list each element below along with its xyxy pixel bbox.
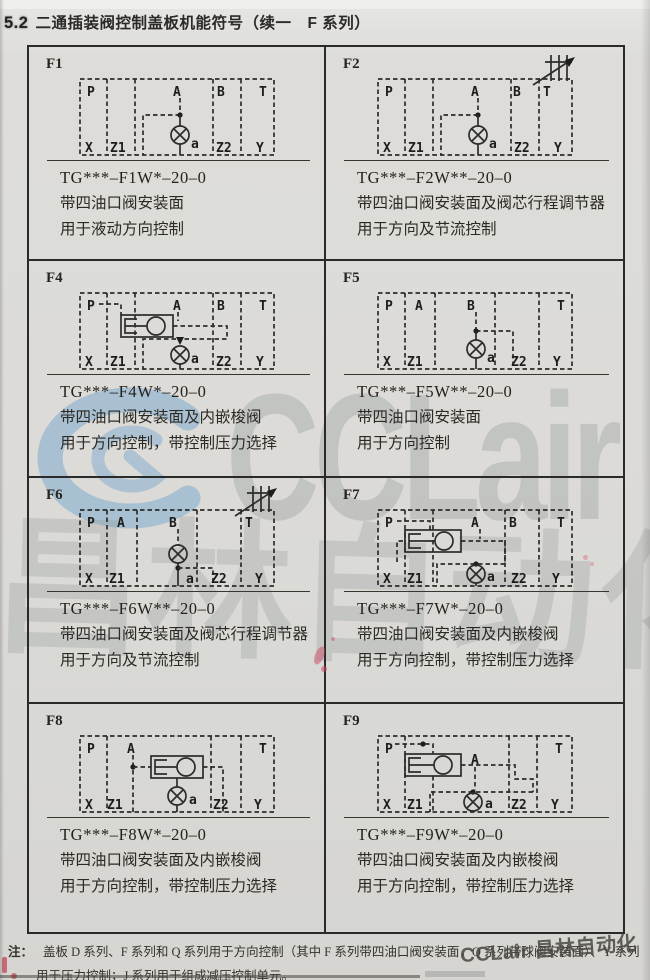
description-line: 带四油口阀安装面及内嵌梭阀 [357, 848, 623, 874]
port-label: B [509, 516, 517, 531]
port-label: Y [552, 572, 560, 587]
shuttle-valve-icon [405, 754, 461, 776]
scan-edge-left [0, 0, 4, 980]
port-label: Z1 [407, 355, 423, 370]
port-label: X [383, 355, 391, 370]
port-label: X [85, 141, 93, 156]
cell-label: F5 [343, 270, 360, 287]
cell-label: F6 [46, 487, 63, 504]
divider-rule [47, 160, 310, 161]
divider-rule [344, 374, 609, 375]
port-label: Z1 [407, 572, 423, 587]
valve-label: a [487, 570, 495, 585]
footnote-label: 注： [8, 945, 33, 959]
port-label: T [557, 516, 565, 531]
port-label: X [383, 572, 391, 587]
description-line: 带四油口阀安装面及内嵌梭阀 [60, 848, 324, 874]
f2-symbol-diagram: P A B T X Z1 Z2 Y a [375, 51, 575, 159]
port-label: Z1 [109, 572, 125, 587]
cell-f1: F1 P A B T X Z1 Z2 Y a [29, 47, 326, 261]
description-line: 用于方向控制，带控制压力选择 [357, 648, 623, 674]
pilot-valve-icon [171, 126, 189, 144]
port-label: T [557, 299, 565, 314]
port-label: Z1 [110, 141, 126, 156]
description-line: 用于方向及节流控制 [60, 648, 324, 674]
divider-rule [47, 591, 310, 592]
port-label: Z2 [211, 572, 227, 587]
cell-f5: F5 P A B T X Z1 Z2 Y a [326, 261, 623, 478]
valve-label: a [485, 797, 493, 812]
description-line: 带四油口阀安装面及阀芯行程调节器 [60, 622, 324, 648]
port-label: T [543, 85, 551, 100]
port-label: Y [554, 141, 562, 156]
port-label: X [85, 355, 93, 370]
description-line: 带四油口阀安装面及内嵌梭阀 [60, 405, 324, 431]
model-code: TG***–F6W**–20–0 [60, 599, 324, 619]
port-label: T [259, 742, 267, 757]
valve-label: a [489, 137, 497, 152]
port-label: Z1 [408, 141, 424, 156]
pilot-valve-icon [464, 793, 482, 811]
cell-f2: F2 P A B T [326, 47, 623, 261]
port-label: P [385, 85, 393, 100]
port-label: Z2 [511, 798, 527, 813]
port-label: T [555, 742, 563, 757]
port-label: A [471, 85, 479, 100]
cell-label: F2 [343, 56, 360, 73]
description-line: 用于方向控制，带控制压力选择 [60, 431, 324, 457]
cell-f4: F4 P A B [29, 261, 326, 478]
port-label: X [383, 141, 391, 156]
port-label: Z2 [514, 141, 530, 156]
scan-edge-top [0, 0, 650, 9]
divider-rule [47, 374, 310, 375]
f7-symbol-diagram: P A B T X Z1 Z2 Y a [375, 482, 575, 590]
port-label: Z1 [407, 798, 423, 813]
f1-symbol-diagram: P A B T X Z1 Z2 Y a [77, 51, 277, 159]
valve-label: a [191, 137, 199, 152]
pilot-valve-icon [168, 787, 186, 805]
port-label: Y [551, 798, 559, 813]
port-label: Z1 [107, 798, 123, 813]
port-label: A [117, 516, 125, 531]
port-label: B [169, 516, 177, 531]
description-line: 用于方向控制 [357, 431, 623, 457]
cell-label: F9 [343, 713, 360, 730]
port-label: P [385, 516, 393, 531]
port-label: Z1 [110, 355, 126, 370]
description-line: 用于方向控制，带控制压力选择 [357, 874, 623, 900]
f5-symbol-diagram: P A B T X Z1 Z2 Y a [375, 265, 575, 373]
scan-edge-right [641, 0, 650, 980]
port-label: B [217, 299, 225, 314]
pilot-valve-icon [169, 545, 187, 563]
cell-f7: F7 P A B [326, 478, 623, 704]
model-code: TG***–F4W*–20–0 [60, 382, 324, 402]
port-label: P [87, 516, 95, 531]
cell-label: F4 [46, 270, 63, 287]
port-label: T [259, 85, 267, 100]
description-line: 用于液动方向控制 [60, 217, 324, 243]
f6-symbol-diagram: P A B T X Z1 Z2 Y a [77, 482, 277, 590]
stroke-adjuster-icon [533, 55, 575, 85]
description-line: 带四油口阀安装面 [357, 405, 623, 431]
model-code: TG***–F1W*–20–0 [60, 168, 324, 188]
port-label: A [415, 299, 423, 314]
section-number: 5.2 [4, 14, 28, 32]
cell-f9: F9 P A T [326, 704, 623, 932]
shuttle-valve-icon [151, 756, 203, 778]
port-label: T [259, 299, 267, 314]
footnote-line2: 用于压力控制；J 系列用于组成减压控制单元。 [36, 965, 639, 980]
model-code: TG***–F8W*–20–0 [60, 825, 324, 845]
model-code: TG***–F7W*–20–0 [357, 599, 623, 619]
port-label: A [471, 516, 479, 531]
cell-label: F1 [46, 56, 63, 73]
port-label: Y [553, 355, 561, 370]
port-label: B [217, 85, 225, 100]
model-code: TG***–F5W**–20–0 [357, 382, 623, 402]
model-code: TG***–F9W*–20–0 [357, 825, 623, 845]
pilot-valve-icon [467, 340, 485, 358]
scanned-catalog-page: 5.2二通插装阀控制盖板机能符号（续一 F 系列） CCLair 昌林自动化 F… [0, 0, 650, 980]
port-label: A [173, 85, 181, 100]
port-label: B [467, 299, 475, 314]
f9-symbol-diagram: P A T X Z1 Z2 Y a [375, 708, 575, 816]
cell-f8: F8 P A T [29, 704, 326, 932]
cell-label: F7 [343, 487, 360, 504]
shuttle-valve-icon [121, 315, 173, 337]
divider-rule [344, 591, 609, 592]
valve-label: a [186, 572, 194, 587]
pilot-valve-icon [469, 126, 487, 144]
port-label: Y [256, 141, 264, 156]
pilot-valve-icon [171, 346, 189, 364]
port-label: X [85, 798, 93, 813]
port-label: Z2 [511, 572, 527, 587]
port-label: A [471, 753, 479, 768]
model-code: TG***–F2W**–20–0 [357, 168, 623, 188]
port-label: T [245, 516, 253, 531]
description-line: 用于方向控制，带控制压力选择 [60, 874, 324, 900]
port-label: P [87, 299, 95, 314]
divider-rule [344, 817, 609, 818]
port-label: Z2 [213, 798, 229, 813]
description-line: 用于方向及节流控制 [357, 217, 623, 243]
port-label: Y [254, 798, 262, 813]
f8-symbol-diagram: P A T X Z1 Z2 Y a [77, 708, 277, 816]
f4-symbol-diagram: P A B T X Z1 Z2 Y a [77, 265, 277, 373]
section-title: 二通插装阀控制盖板机能符号（续一 F 系列） [35, 15, 370, 32]
port-label: X [85, 572, 93, 587]
valve-label: a [487, 351, 495, 366]
symbol-table: F1 P A B T X Z1 Z2 Y a [27, 45, 625, 934]
description-line: 带四油口阀安装面 [60, 191, 324, 217]
port-label: Z2 [216, 355, 232, 370]
port-label: P [87, 742, 95, 757]
port-label: P [385, 742, 393, 757]
stroke-adjuster-icon [235, 486, 277, 516]
divider-rule [47, 817, 310, 818]
pen-mark [2, 957, 7, 973]
valve-label: a [191, 352, 199, 367]
port-label: X [383, 798, 391, 813]
page-title: 5.2二通插装阀控制盖板机能符号（续一 F 系列） [4, 11, 370, 33]
pilot-valve-icon [467, 565, 485, 583]
port-label: P [385, 299, 393, 314]
cell-label: F8 [46, 713, 63, 730]
port-label: Z2 [511, 355, 527, 370]
port-label: Y [255, 572, 263, 587]
port-label: Z2 [216, 141, 232, 156]
valve-label: a [189, 793, 197, 808]
port-label: A [127, 742, 135, 757]
divider-rule [344, 160, 609, 161]
description-line: 带四油口阀安装面及内嵌梭阀 [357, 622, 623, 648]
port-label: Y [256, 355, 264, 370]
description-line: 带四油口阀安装面及阀芯行程调节器 [357, 191, 623, 217]
cell-f6: F6 P A B T X [29, 478, 326, 704]
port-label: P [87, 85, 95, 100]
port-label: B [513, 85, 521, 100]
port-label: A [173, 299, 181, 314]
